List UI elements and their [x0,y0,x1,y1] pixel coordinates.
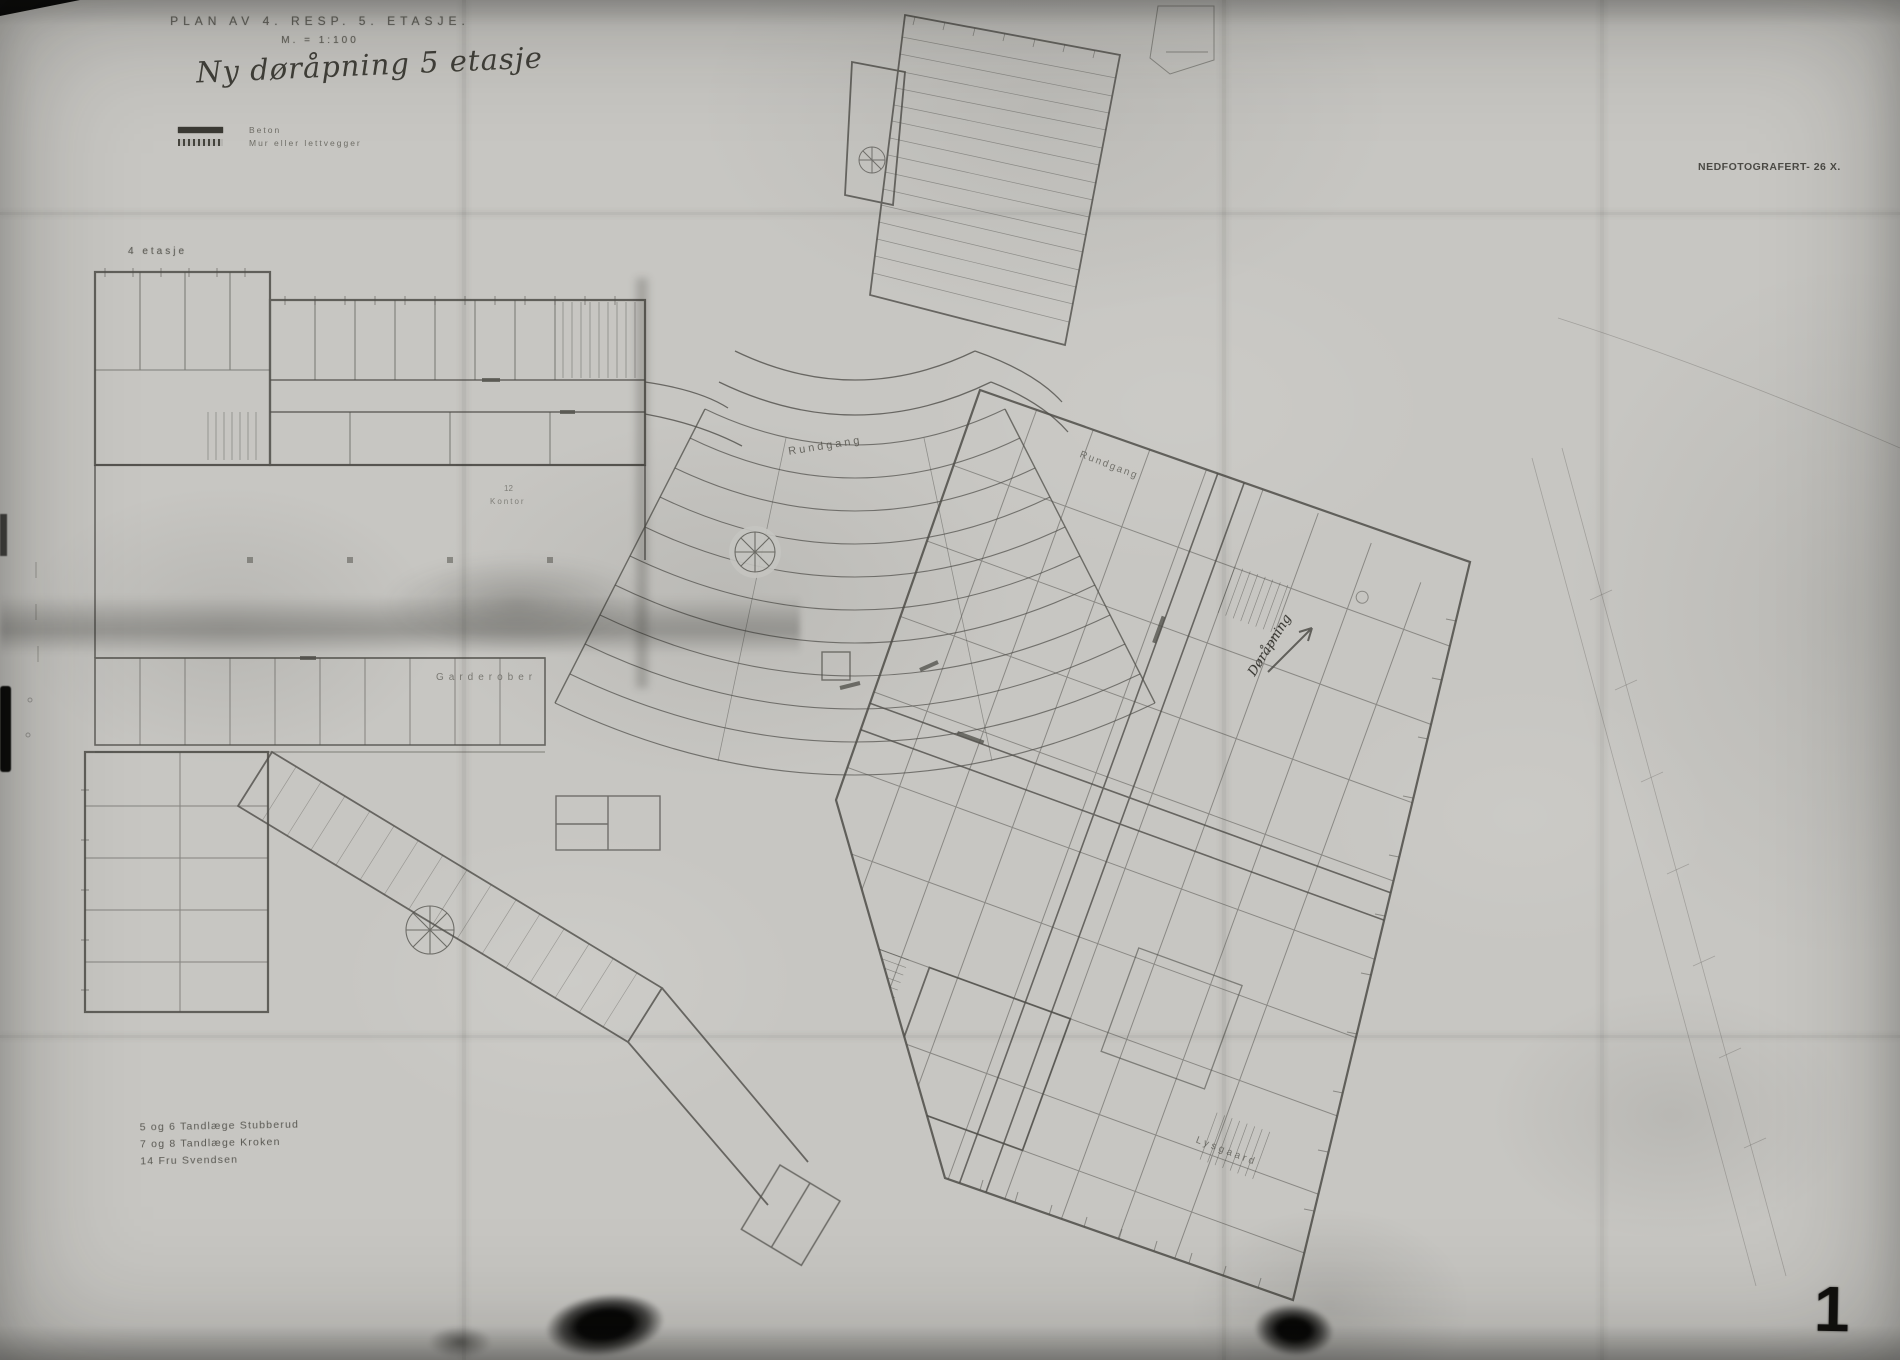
scan-blob-2 [1252,1301,1336,1360]
tenant-notes: 5 og 6 Tandlæge Stubberud 7 og 8 Tandlæg… [140,1117,300,1171]
kontor-label: Kontor [490,497,526,506]
fold-line-vertical-3 [1600,0,1604,1360]
photo-stamp: NEDFOTOGRAFERT- 26 X. [1698,161,1841,173]
fold-line-vertical-2 [1222,0,1226,1360]
title-block: PLAN AV 4. RESP. 5. ETASJE. M. = 1:100 [170,14,470,46]
legend-row-mur: Mur eller lettvegger [178,136,362,149]
dark-smear-fold [636,278,648,688]
note-line-2: 7 og 8 Tandlæge Kroken [140,1134,300,1154]
fold-line-horizontal-2 [0,1035,1900,1038]
mur-label: Mur eller lettvegger [249,138,362,148]
beton-label: Beton [249,125,281,135]
floor-label: 4 etasje [128,246,187,257]
legend: Beton Mur eller lettvegger [178,123,362,149]
beton-swatch [178,127,223,133]
scan-edge-streak-1 [0,686,11,772]
mur-swatch [178,139,223,146]
plan-title: PLAN AV 4. RESP. 5. ETASJE. [170,14,470,28]
sheet-number: 1 [1813,1272,1850,1347]
garderobe-label: Garderober [436,672,537,683]
fold-line-horizontal-1 [0,212,1900,215]
scanned-floorplan-sheet: PLAN AV 4. RESP. 5. ETASJE. M. = 1:100 N… [0,0,1900,1360]
note-line-3: 14 Fru Svendsen [140,1151,300,1171]
room-number-label: 12 [504,484,513,493]
scan-blob-3 [428,1326,492,1358]
plan-scale: M. = 1:100 [170,35,470,46]
dark-smear-blotch [382,556,652,652]
fold-line-vertical-1 [462,0,466,1360]
legend-row-beton: Beton [178,123,362,136]
scan-edge-streak-2 [0,514,7,556]
